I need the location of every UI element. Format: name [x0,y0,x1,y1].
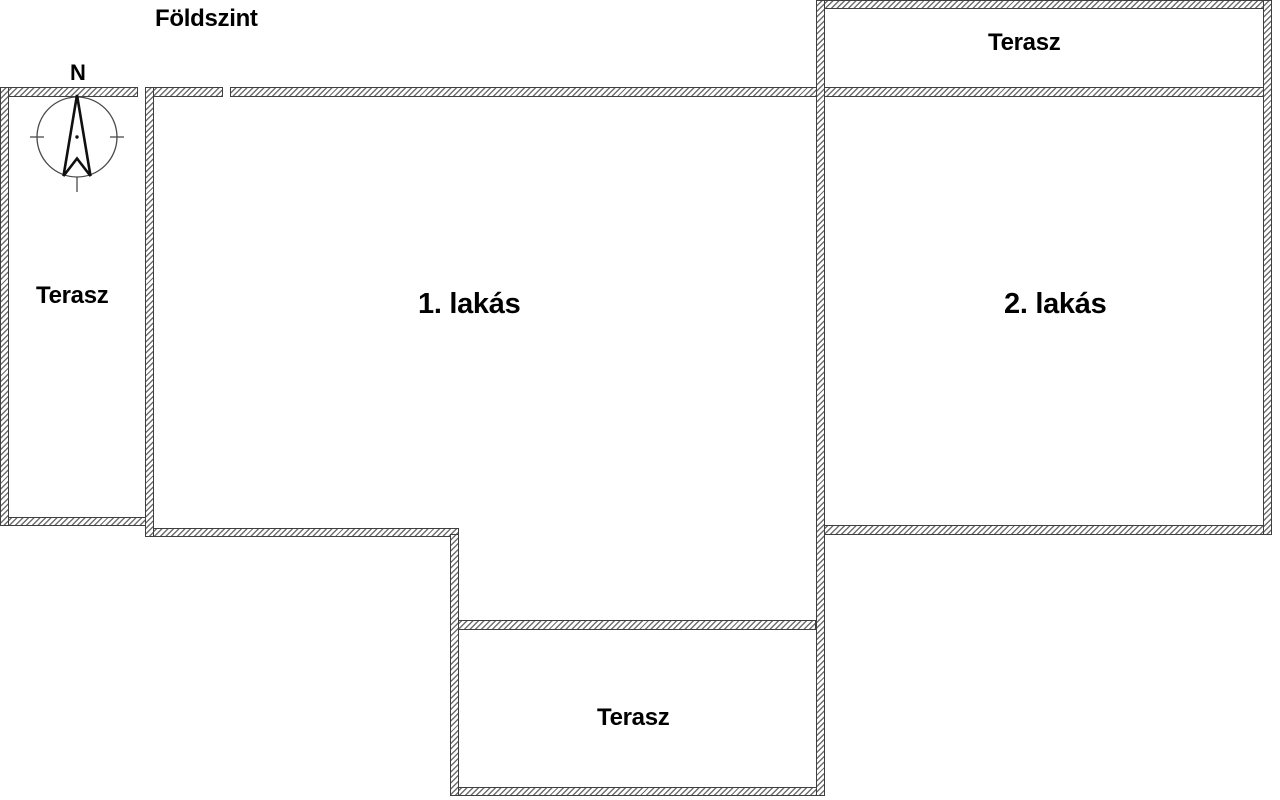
wall-terrace-top-right-top [816,0,1272,9]
floorplan-canvas: Földszint N Terasz 1. lakás 2. lakás Ter… [0,0,1280,800]
compass-north-label: N [70,62,86,84]
wall-terrace-bottom-top [450,620,816,630]
room-label-apartment-1: 1. lakás [418,290,520,319]
wall-apartment1-bottom [145,528,459,537]
room-label-terrace-left: Terasz [36,284,108,308]
wall-top-apartment1-a [145,87,223,97]
wall-right-outer [1263,0,1272,535]
wall-top-main [230,87,1272,97]
room-label-apartment-2: 2. lakás [1004,290,1106,319]
wall-top-terrace-left [0,87,138,97]
room-label-terrace-top-right: Terasz [988,31,1060,55]
wall-apartment2-bottom [816,525,1272,535]
wall-terrace-left-bottom [0,517,146,526]
room-label-terrace-bottom: Terasz [597,706,669,730]
wall-terrace-bottom-bottom [450,787,825,796]
wall-divider [816,0,825,796]
wall-terrace-left-left [0,87,9,526]
floor-title: Földszint [155,7,258,31]
wall-terrace-bottom-left [450,534,459,796]
wall-apartment1-left [145,87,154,537]
